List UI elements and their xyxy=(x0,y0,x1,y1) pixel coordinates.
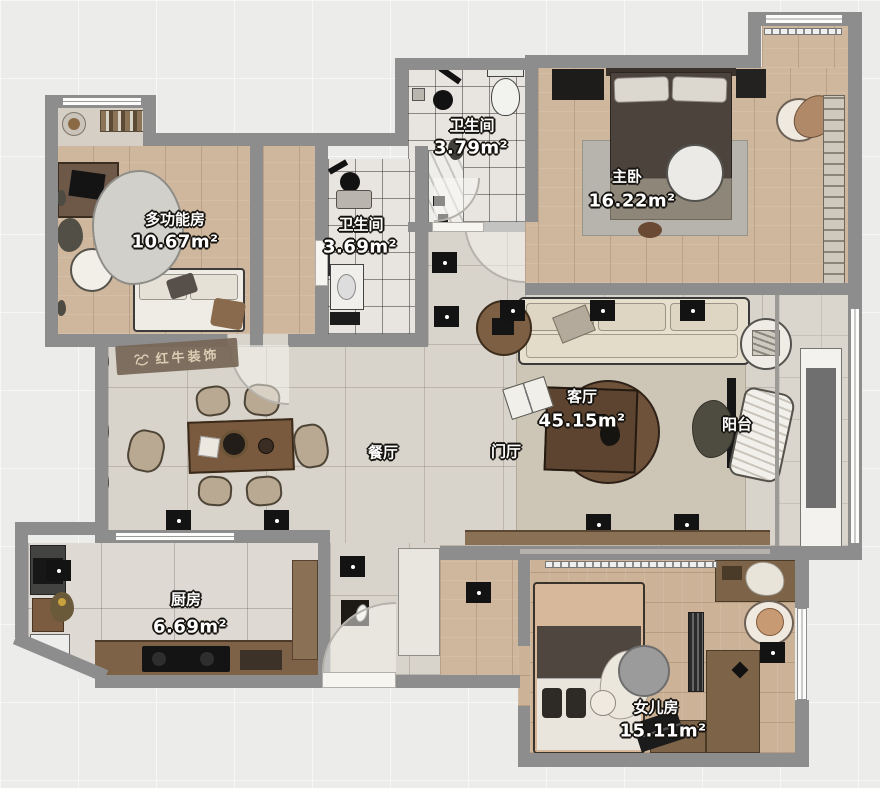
room-label-kitchen: 厨房 xyxy=(171,589,201,610)
plant-multifunction xyxy=(57,218,83,252)
daughter-desk xyxy=(706,650,760,753)
plant-wall-strip xyxy=(57,190,66,206)
door-threshold-bath-top xyxy=(432,222,484,232)
decor-plate-dots xyxy=(68,118,80,130)
wall xyxy=(525,58,538,222)
tall-cabinet xyxy=(292,560,318,660)
cooktop-burner xyxy=(200,652,214,666)
wall xyxy=(95,675,322,688)
spotlight xyxy=(466,582,491,603)
curtain-master-window xyxy=(764,28,842,35)
spotlight xyxy=(680,300,705,321)
room-area-daughter: 15.11m² xyxy=(619,721,706,742)
master-door-gap xyxy=(525,222,538,283)
wall xyxy=(748,12,761,68)
bed-pillow-dark xyxy=(542,688,562,718)
nightstand xyxy=(736,69,766,98)
wall xyxy=(525,55,755,68)
wall xyxy=(525,283,862,295)
master-wardrobe xyxy=(823,95,845,285)
dining-chair xyxy=(197,475,233,507)
bed-pillow-dark xyxy=(566,688,586,718)
room-label-master: 主卧 xyxy=(612,166,642,187)
room-label-multifunction: 多功能房 xyxy=(145,209,205,230)
soundbar xyxy=(520,549,770,554)
spotlight xyxy=(500,300,525,321)
dining-bowl xyxy=(258,438,274,454)
room-label-living: 客厅 xyxy=(567,386,597,407)
balcony-cabinet xyxy=(806,368,836,508)
kitchen-tray xyxy=(240,650,282,670)
room-area-multifunction: 10.67m² xyxy=(131,232,218,253)
room-area-kitchen: 6.69m² xyxy=(153,617,227,638)
kitchen-plant xyxy=(50,592,74,622)
window xyxy=(62,97,142,106)
sofa-seat-cushion xyxy=(526,334,738,358)
wall xyxy=(848,12,862,295)
dining-placemat xyxy=(198,436,221,459)
bath-base-dark xyxy=(330,312,360,325)
wall xyxy=(45,95,58,347)
window xyxy=(797,608,807,700)
shower-head xyxy=(433,90,453,110)
balcony-slider-track xyxy=(775,295,779,546)
closet-box xyxy=(722,566,742,580)
master-tv-dresser xyxy=(552,69,604,100)
room-area-bath-mid: 3.69m² xyxy=(323,237,397,258)
toilet-bowl xyxy=(491,78,520,116)
wall xyxy=(396,675,520,688)
shower-head xyxy=(340,172,360,192)
desk-chair-cushion xyxy=(756,608,784,636)
room-area-master: 16.22m² xyxy=(588,191,675,212)
spotlight xyxy=(760,642,785,663)
entry-door-threshold xyxy=(322,672,396,688)
spotlight xyxy=(264,510,289,531)
washbasin-bowl xyxy=(337,274,356,300)
wall xyxy=(95,345,108,530)
window xyxy=(115,532,235,541)
window xyxy=(850,308,860,544)
room-label-daughter: 女儿房 xyxy=(633,697,678,718)
spotlight xyxy=(340,556,365,577)
wall xyxy=(250,133,263,347)
curtain-daughter-window xyxy=(545,561,717,568)
floor-drain xyxy=(412,88,425,101)
shoe-cabinet xyxy=(398,548,440,656)
room-label-balcony: 阳台 xyxy=(722,414,752,435)
hallway-bottom-floor xyxy=(440,546,518,676)
kitchen-plant-flower xyxy=(58,598,66,606)
cooktop-burner xyxy=(152,652,166,666)
window xyxy=(765,14,843,24)
wall xyxy=(15,522,28,638)
bed-round-pillow xyxy=(590,690,616,716)
wall xyxy=(415,146,428,347)
tv-console xyxy=(465,530,770,545)
room-area-bath-top: 3.79m² xyxy=(434,138,508,159)
room-label-bath-mid: 卫生间 xyxy=(338,214,383,235)
bed-pillow xyxy=(672,76,728,103)
floor-plan-canvas: 红牛装饰 多功能房 10.67m² 卫生间 3.79m² 卫生间 3.69m² … xyxy=(0,0,880,788)
wall xyxy=(408,222,432,232)
wall xyxy=(518,546,530,646)
wall xyxy=(795,546,809,608)
wall xyxy=(440,546,520,560)
wall xyxy=(395,58,538,70)
bed-end-stool xyxy=(638,222,662,238)
sofa-throw-brown xyxy=(210,297,246,330)
wall xyxy=(810,546,862,560)
plant-wall-strip xyxy=(57,300,66,316)
hallway-top-floor xyxy=(263,146,315,334)
room-area-living: 45.15m² xyxy=(538,411,625,432)
dining-plate-large xyxy=(220,430,248,458)
spotlight xyxy=(166,510,191,531)
wall xyxy=(395,58,408,146)
spotlight xyxy=(590,300,615,321)
spotlight xyxy=(434,306,459,327)
brand-watermark-text: 红牛装饰 xyxy=(155,344,220,367)
wall xyxy=(143,133,408,146)
bed-pillow xyxy=(614,76,670,103)
bull-logo-icon xyxy=(134,351,151,366)
washing-machine xyxy=(336,190,372,209)
room-label-dining: 餐厅 xyxy=(368,442,398,463)
wall xyxy=(518,753,809,767)
bookshelf-books xyxy=(100,110,144,132)
spotlight xyxy=(46,560,71,581)
radiator-panel xyxy=(688,612,704,692)
bedside-round-table xyxy=(618,645,670,697)
wall xyxy=(315,334,428,347)
spotlight xyxy=(432,252,457,273)
room-label-bath-top: 卫生间 xyxy=(449,115,494,136)
room-label-foyer: 门厅 xyxy=(491,441,521,462)
